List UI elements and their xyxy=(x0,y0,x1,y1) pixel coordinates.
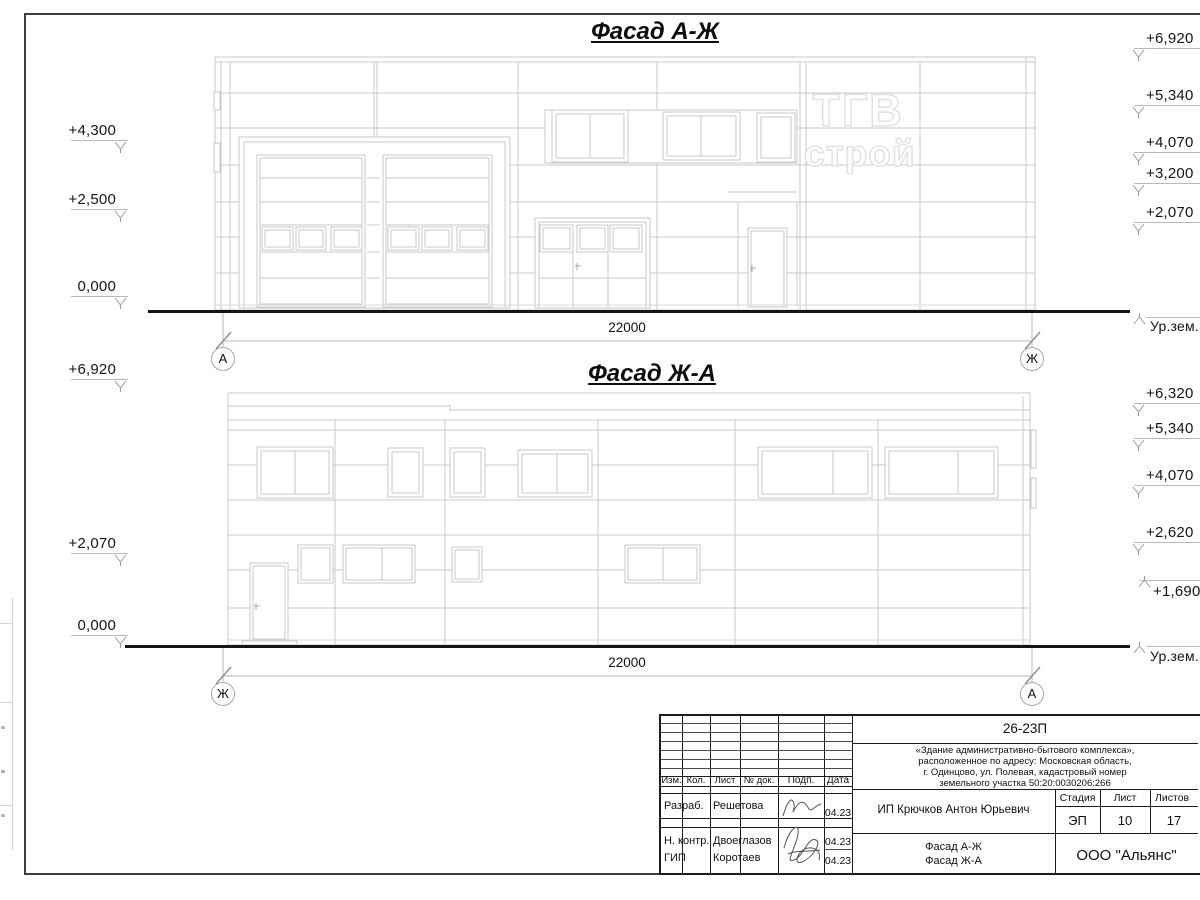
elevation-mark: +1,690 xyxy=(1153,583,1200,600)
elevation-mark: +2,500 xyxy=(58,191,116,208)
elevation-check-icon xyxy=(114,141,127,154)
elevation-check-icon xyxy=(114,210,127,223)
stage-value: 10 xyxy=(1100,813,1150,828)
signature-scribble xyxy=(781,794,823,822)
elevation-check-icon xyxy=(1132,223,1145,236)
row-name: Двоеглазов xyxy=(713,835,771,847)
elevation-mark: +4,070 xyxy=(1146,134,1194,151)
row-name: Коротаев xyxy=(713,852,761,864)
elevation-mark: +2,070 xyxy=(58,535,116,552)
elevation-check-icon xyxy=(1132,153,1145,166)
facade-bottom-title: Фасад Ж-А xyxy=(517,360,787,388)
elevation-mark: +5,340 xyxy=(1146,87,1194,104)
doc-number: 26-23П xyxy=(852,721,1198,736)
dimension-value-bottom: 22000 xyxy=(557,655,697,670)
sheet-name-line: Фасад Ж-А xyxy=(852,854,1055,868)
stage-value: 17 xyxy=(1150,813,1198,828)
dimension-value-top: 22000 xyxy=(557,320,697,335)
col-header: Кол. xyxy=(682,775,710,786)
col-header: № док. xyxy=(740,775,778,786)
axis-circle: А xyxy=(1020,682,1044,706)
elevation-check-icon xyxy=(114,554,127,567)
elevation-check-up-icon xyxy=(1133,641,1146,654)
watermark-logo-line2: строй xyxy=(804,134,912,174)
elevation-mark: +6,920 xyxy=(58,361,116,378)
title-block: 26-23П «Здание административно-бытового … xyxy=(659,714,1200,875)
signature-scribble xyxy=(778,820,826,870)
frame-left-border xyxy=(24,13,26,875)
ground-level-label: Ур.зем. xyxy=(1150,318,1199,334)
axis-circle: Ж xyxy=(211,682,235,706)
elevation-mark: +4,300 xyxy=(58,122,116,139)
elevation-check-icon xyxy=(1132,439,1145,452)
row-name: Решетова xyxy=(713,800,763,812)
description-line: расположенное по адресу: Московская обла… xyxy=(852,756,1198,767)
elevation-mark: +6,920 xyxy=(1146,30,1194,47)
stage-header: Лист xyxy=(1100,792,1150,804)
facade-bottom-drawing xyxy=(213,390,1041,652)
elevation-check-icon xyxy=(1132,184,1145,197)
row-role: Н. контр. xyxy=(664,835,709,847)
elevation-check-up-icon xyxy=(1138,575,1151,588)
elevation-mark: 0,000 xyxy=(58,278,116,295)
watermark-logo-line1: ТГВ xyxy=(806,88,910,134)
elevation-mark: +3,200 xyxy=(1146,165,1194,182)
elevation-mark: 0,000 xyxy=(58,617,116,634)
row-role: ГИП xyxy=(664,852,686,864)
facade-top-title: Фасад А-Ж xyxy=(520,18,790,46)
description-line: «Здание административно-бытового комплек… xyxy=(852,745,1198,756)
row-role: Разраб. xyxy=(664,800,704,812)
stage-header: Листов xyxy=(1155,792,1189,804)
stage-header: Стадия xyxy=(1055,792,1100,804)
elevation-check-icon xyxy=(1132,404,1145,417)
axis-circle: Ж xyxy=(1020,347,1044,371)
row-date: 04.23 xyxy=(824,855,852,867)
description-line: г. Одинцово, ул. Полевая, кадастровый но… xyxy=(852,767,1198,778)
elevation-check-up-icon xyxy=(1133,312,1146,325)
elevation-mark: +5,340 xyxy=(1146,420,1194,437)
row-date: 04.23 xyxy=(824,836,852,848)
company-name: ООО "Альянс" xyxy=(1055,847,1198,864)
elevation-check-icon xyxy=(1132,543,1145,556)
elevation-mark: +2,070 xyxy=(1146,204,1194,221)
axis-circle: А xyxy=(211,347,235,371)
elevation-mark: +4,070 xyxy=(1146,467,1194,484)
elevation-mark: +2,620 xyxy=(1146,524,1194,541)
facade-top-drawing xyxy=(213,53,1041,315)
col-header: Подп. xyxy=(778,775,824,786)
sheet-name-line: Фасад А-Ж xyxy=(852,840,1055,854)
elevation-mark: +6,320 xyxy=(1146,385,1194,402)
stage-value: ЭП xyxy=(1055,813,1100,828)
elevation-check-icon xyxy=(1132,49,1145,62)
elevation-check-icon xyxy=(1132,486,1145,499)
col-header: Лист xyxy=(710,775,740,786)
elevation-check-icon xyxy=(114,636,127,649)
sheet-name: Фасад А-Ж Фасад Ж-А xyxy=(852,840,1055,868)
client-name: ИП Крючков Антон Юрьевич xyxy=(852,804,1055,816)
project-description: «Здание административно-бытового комплек… xyxy=(852,745,1198,789)
col-header: Дата xyxy=(824,775,852,786)
ground-level-label: Ур.зем. xyxy=(1150,648,1199,664)
elevation-check-icon xyxy=(1132,106,1145,119)
dimension-lines-bottom xyxy=(140,640,1060,710)
drawing-sheet-page: { "sheet": { "titles": { "top": "Фасад А… xyxy=(0,0,1200,900)
elevation-check-icon xyxy=(114,380,127,393)
elevation-check-icon xyxy=(114,297,127,310)
col-header: Изм. xyxy=(661,775,682,786)
description-line: земельного участка 50:20:0030206:266 xyxy=(852,778,1198,789)
row-date: 04.23 xyxy=(824,807,852,819)
frame-top-border xyxy=(24,13,1200,15)
